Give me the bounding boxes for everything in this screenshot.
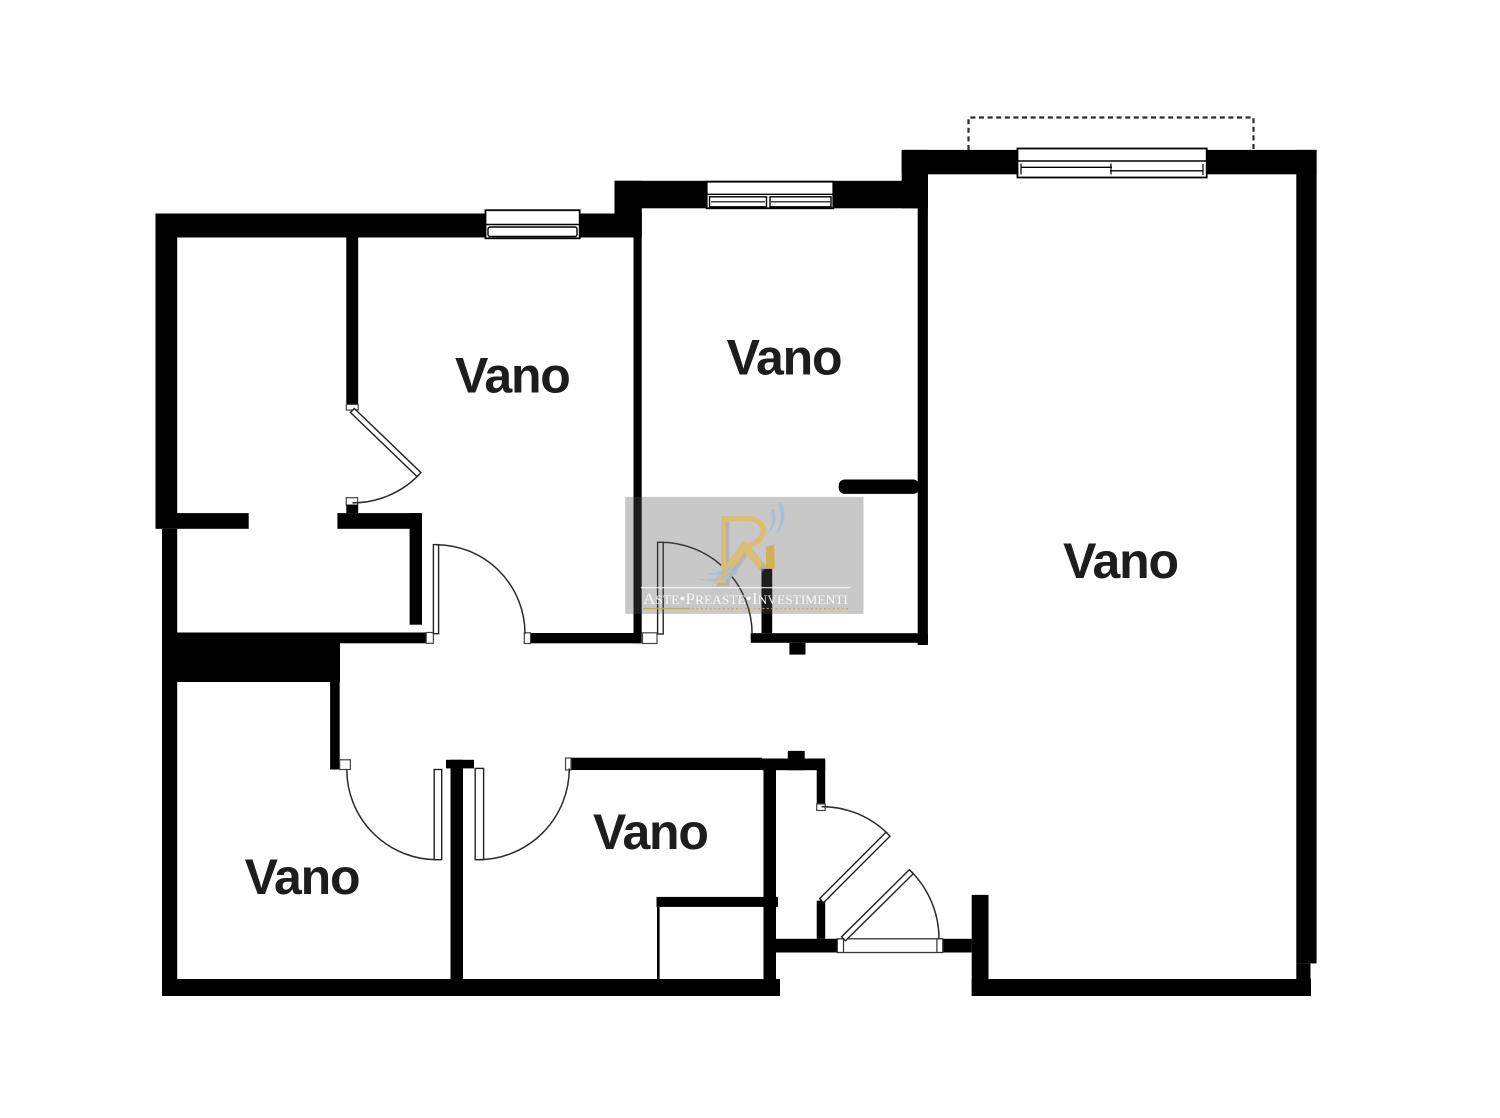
svg-text:Vano: Vano: [1063, 533, 1178, 589]
svg-text:Vano: Vano: [245, 849, 360, 905]
svg-text:Vano: Vano: [455, 347, 570, 403]
svg-text:Vano: Vano: [593, 804, 708, 860]
svg-text:Vano: Vano: [727, 330, 842, 386]
svg-text:ASTE•PREASTE•INVESTIMENTI: ASTE•PREASTE•INVESTIMENTI: [643, 591, 848, 608]
